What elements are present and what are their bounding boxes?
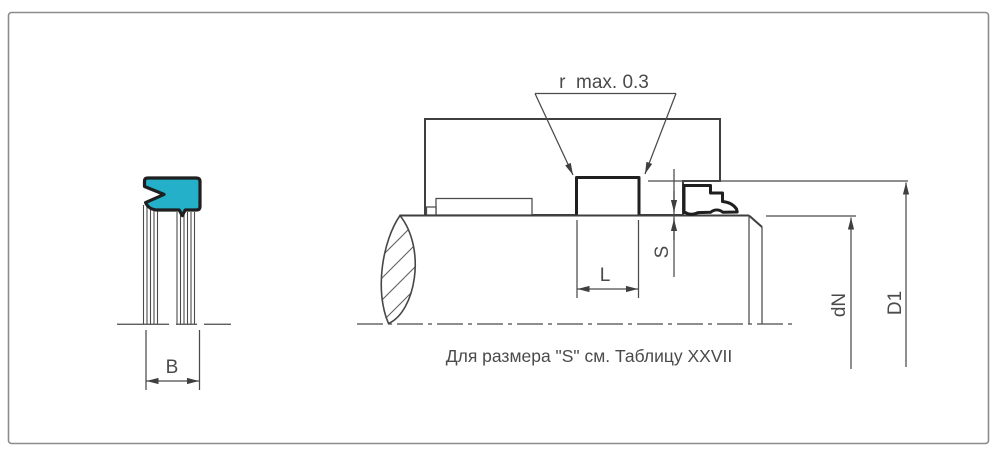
dimension-dN: dN — [829, 218, 851, 370]
label-L: L — [600, 265, 611, 286]
installation-view: r max. 0.3 L S dN D1 — [357, 72, 908, 369]
dimension-L: L — [577, 220, 639, 298]
rod-chamfer — [749, 216, 762, 228]
seal-cross-section — [145, 178, 201, 216]
rod-break-end — [381, 216, 415, 324]
footnote-text: Для размера "S" см. Таблицу XXVII — [446, 346, 733, 366]
label-B: B — [166, 357, 179, 378]
seal-profile-view: B — [117, 178, 231, 390]
seal-body-edge-lines — [144, 205, 195, 324]
dimension-B: B — [146, 330, 200, 390]
drawing-canvas: B r max. 0.3 — [0, 0, 1000, 457]
installed-seal — [684, 186, 737, 215]
radius-callout: r max. 0.3 — [535, 72, 676, 175]
housing-notch — [427, 207, 437, 215]
label-r-max: r max. 0.3 — [559, 72, 649, 93]
dimension-S: S — [652, 169, 674, 277]
label-D1: D1 — [885, 291, 906, 315]
figure-border — [9, 13, 989, 444]
label-dN: dN — [829, 293, 850, 317]
housing-recess — [436, 199, 532, 216]
label-S: S — [652, 246, 673, 259]
seal-groove — [577, 178, 640, 216]
technical-drawing: B r max. 0.3 — [0, 0, 1000, 457]
dimension-D1: D1 — [885, 183, 906, 368]
